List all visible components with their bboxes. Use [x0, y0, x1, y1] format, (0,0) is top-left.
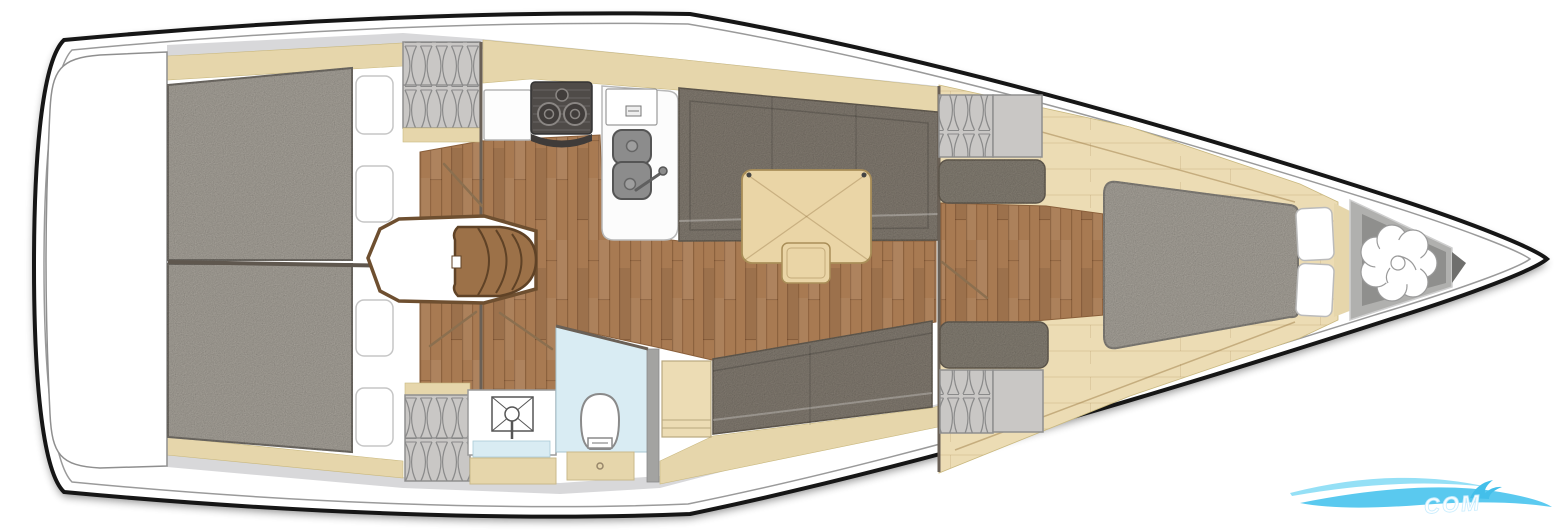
- watermark-text: COM: [1423, 490, 1482, 519]
- floorplan-canvas: COM: [0, 0, 1560, 532]
- stove-burner-right: [564, 103, 586, 125]
- fore-cabinet-bottom: [993, 370, 1043, 432]
- aft-pillow-4: [356, 388, 393, 446]
- fore-pillow-2: [1296, 263, 1335, 317]
- watermark: COM: [1290, 478, 1552, 519]
- stool-top: [782, 243, 830, 283]
- fore-hanging-locker-top-pattern: [939, 95, 993, 157]
- stern-platform: [46, 52, 167, 468]
- aft-berth-starboard-mattress: [168, 264, 352, 452]
- head-toilet: [581, 394, 619, 449]
- forward-cabin-floor: [941, 203, 1104, 329]
- fore-pillow-1: [1296, 207, 1335, 261]
- stair-steps: [454, 227, 536, 296]
- aft-pillow-1: [356, 76, 393, 134]
- aft-pillow-3: [356, 300, 393, 356]
- aft-berth-port-mattress: [168, 68, 352, 260]
- aft-pillow-2: [356, 166, 393, 222]
- yacht-floorplan-image: COM: [0, 0, 1560, 532]
- fore-seat-bottom: [940, 322, 1048, 368]
- sink-drain-bottom: [625, 179, 636, 190]
- fore-seat-top: [939, 160, 1045, 203]
- washbasin-bowl: [505, 407, 519, 421]
- salon-shelf: [662, 361, 711, 437]
- sink-drain-top: [627, 141, 638, 152]
- head-vanity-shower: [470, 458, 556, 484]
- companionway-stairs: [368, 216, 536, 303]
- fore-cabinet-top: [993, 95, 1042, 157]
- stove-burner-left: [538, 103, 560, 125]
- table-pin-right: [862, 173, 867, 178]
- stove-burner-small: [556, 89, 568, 101]
- head-vanity-toilet: [567, 452, 634, 480]
- stair-notch: [452, 256, 461, 268]
- sink-faucet-base: [659, 167, 667, 175]
- head-wall-right: [647, 349, 659, 482]
- coil-center: [1391, 256, 1405, 270]
- table-pin-left: [747, 173, 752, 178]
- aft-locker-trim-starboard: [405, 383, 470, 396]
- head-shower-floor-strip: [473, 441, 550, 457]
- shelf-body: [662, 361, 711, 437]
- galley-counter-left: [484, 90, 531, 140]
- aft-locker-trim-port: [403, 128, 480, 142]
- salon-stool: [782, 243, 830, 283]
- fore-hanging-locker-bottom-pattern: [940, 370, 993, 433]
- galley-sink-unit: [602, 86, 678, 240]
